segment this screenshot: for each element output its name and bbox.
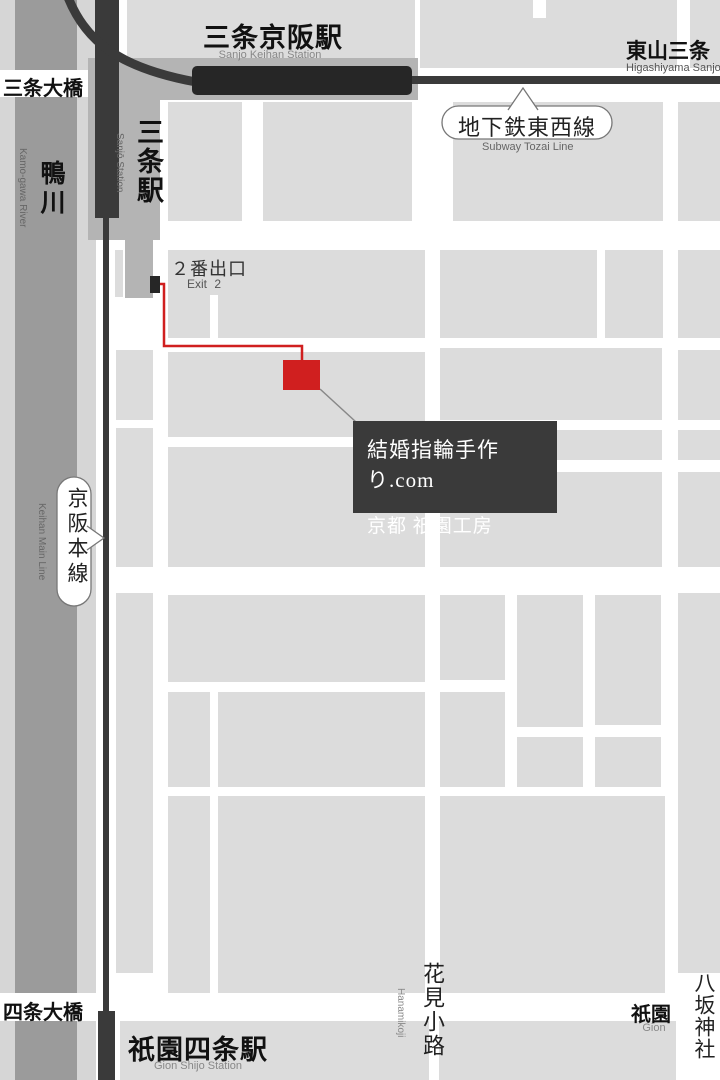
map-lines-layer xyxy=(0,0,720,1080)
shop-label: 結婚指輪手作り.com 京都 祇園工房 xyxy=(353,421,557,513)
shop-label-connector xyxy=(320,389,356,422)
station-label-gion-shijo-en: Gion Shijo Station xyxy=(128,1060,268,1072)
label-hanamikoji: 花見小路 xyxy=(416,962,448,1058)
station-label-sanjo-keihan-en: Sanjo Keihan Station xyxy=(204,49,336,61)
walking-route-line xyxy=(160,284,302,362)
station-label-sanjo: 三条駅 xyxy=(129,118,168,205)
label-kamo-river-en: Kamo-gawa River xyxy=(17,148,28,227)
station-label-sanjo-en: Sanjō Station xyxy=(114,133,125,193)
label-keihan-main-line-en: Keihan Main Line xyxy=(36,503,47,580)
label-higashiyama-sanjo: 東山三条 xyxy=(626,35,710,65)
label-hanamikoji-en: Hanamikoji xyxy=(395,988,406,1037)
label-gion-en: Gion xyxy=(631,1022,677,1034)
label-keihan-main-line: 京阪本線 xyxy=(61,487,91,587)
shop-marker xyxy=(283,360,320,390)
shop-label-line1: 結婚指輪手作り.com xyxy=(367,434,557,494)
exit2-marker xyxy=(150,276,160,293)
keihan-line-curve xyxy=(66,0,196,82)
shop-label-line2: 京都 祇園工房 xyxy=(367,511,557,538)
label-sanjo-ohashi: 三条大橋 xyxy=(3,72,83,101)
label-shijo-ohashi: 四条大橋 xyxy=(3,996,83,1025)
label-tozai-line: 地下鉄東西線 xyxy=(447,110,607,142)
label-tozai-line-en: Subway Tozai Line xyxy=(482,141,574,153)
label-kamo-river: 鴨川 xyxy=(33,160,69,218)
label-higashiyama-sanjo-en: Higashiyama Sanjo xyxy=(626,62,720,74)
access-map: 結婚指輪手作り.com 京都 祇園工房 三条京阪駅 Sanjo Keihan S… xyxy=(0,0,720,1080)
sanjo-keihan-platform xyxy=(192,66,412,95)
label-yasaka-shrine: 八坂神社 xyxy=(688,972,718,1060)
label-exit2-en: Exit 2 xyxy=(187,277,221,291)
